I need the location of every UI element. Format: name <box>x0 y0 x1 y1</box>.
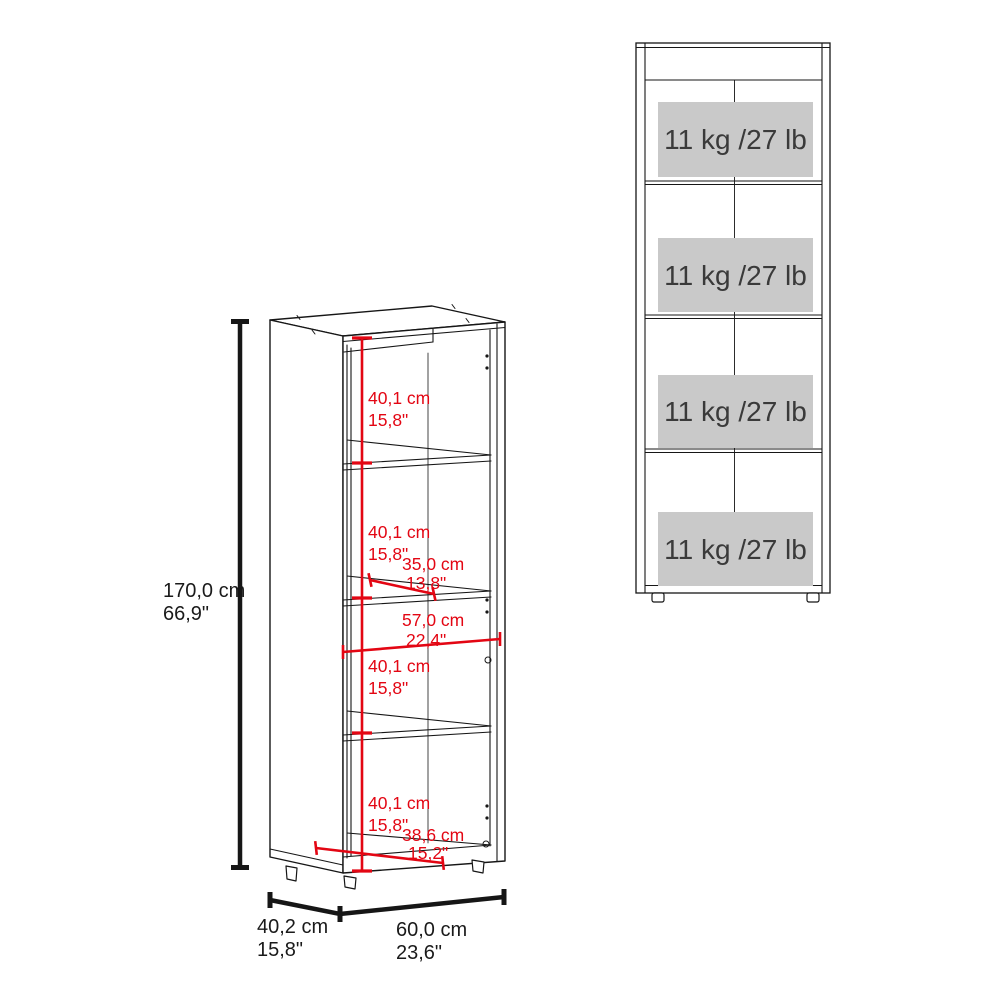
overall-height-in-label: 66,9" <box>163 603 209 625</box>
compartment-4-height-cm: 40,1 cm <box>368 793 430 813</box>
depth-cm-label: 40,2 cm <box>257 916 328 938</box>
compartment-2-height-cm: 40,1 cm <box>368 522 430 542</box>
overall-height-cm-label: 170,0 cm <box>163 580 245 602</box>
front-view-figure: 11 kg /27 lb 11 kg /27 lb 11 kg /27 lb 1… <box>636 43 830 602</box>
compartment-3-height-cm: 40,1 cm <box>368 656 430 676</box>
shelf-2-capacity-label: 11 kg /27 lb <box>664 260 807 291</box>
base-depth-in: 15,2" <box>408 843 448 863</box>
shelf-4-capacity-label: 11 kg /27 lb <box>664 534 807 565</box>
shelf-depth-in: 13,8" <box>406 573 446 593</box>
compartment-3-height-in: 15,8" <box>368 678 408 698</box>
compartment-1-height-cm: 40,1 cm <box>368 388 430 408</box>
width-in-label: 23,6" <box>396 942 442 964</box>
depth-in-label: 15,8" <box>257 939 303 961</box>
compartment-1-height-in: 15,8" <box>368 410 408 430</box>
cabinet-left-panel <box>270 320 343 873</box>
shelf-1-capacity-label: 11 kg /27 lb <box>664 124 807 155</box>
interior-width-in: 22,4" <box>406 630 446 650</box>
shelf-depth-cm: 35,0 cm <box>402 554 464 574</box>
side-view-figure: 170,0 cm 66,9" 40,2 cm 15,8" 60,0 cm 23,… <box>163 305 505 965</box>
width-cm-label: 60,0 cm <box>396 919 467 941</box>
product-dimension-diagram: 170,0 cm 66,9" 40,2 cm 15,8" 60,0 cm 23,… <box>0 0 1000 1000</box>
front-view-feet <box>652 593 819 602</box>
shelf-3-capacity-label: 11 kg /27 lb <box>664 396 807 427</box>
interior-width-cm: 57,0 cm <box>402 610 464 630</box>
base-depth-cm: 38,6 cm <box>402 825 464 845</box>
